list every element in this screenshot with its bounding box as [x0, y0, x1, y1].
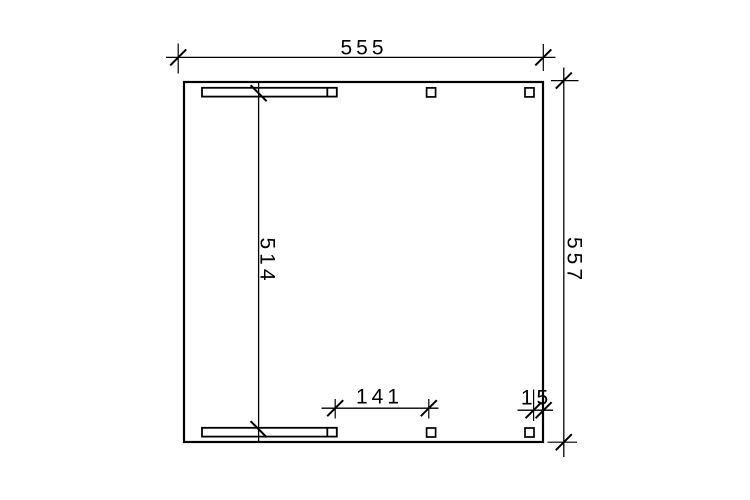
bottom-beam: [202, 428, 337, 437]
top-beam: [202, 88, 337, 97]
dimension-inner-span: 514: [251, 82, 279, 442]
technical-drawing-canvas: 555 557 514 141: [0, 0, 750, 500]
dimension-label-post-spacing: 141: [356, 386, 403, 409]
dimension-label-inner-span: 514: [256, 237, 279, 284]
post-top-middle: [427, 88, 436, 97]
post-bottom-middle: [427, 428, 436, 437]
top-beam-body: [202, 88, 337, 97]
dimension-post-spacing: 141: [322, 386, 439, 419]
dimension-label-overall-depth: 557: [563, 237, 586, 284]
floor-plan-svg: 555 557 514 141: [0, 0, 750, 500]
dimension-edge-offset: 15: [518, 387, 554, 422]
dimension-label-edge-offset: 15: [521, 387, 552, 410]
dimension-label-overall-width: 555: [340, 37, 387, 60]
post-bottom-right: [525, 428, 534, 437]
dimension-overall-depth: 557: [548, 68, 586, 458]
bottom-beam-body: [202, 428, 337, 437]
dimension-overall-width: 555: [166, 37, 556, 74]
post-top-right: [525, 88, 534, 97]
